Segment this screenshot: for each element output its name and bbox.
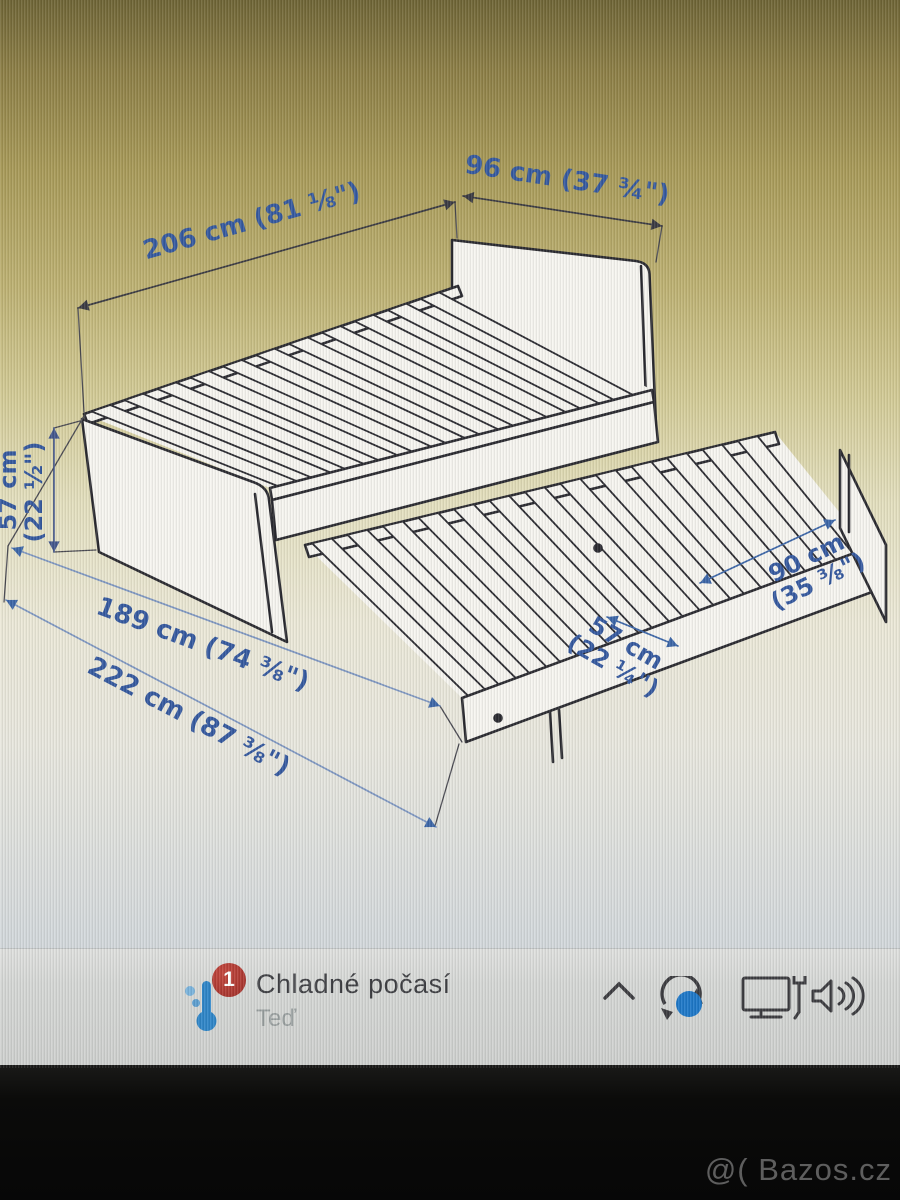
weather-news-widget[interactable]: 1 Chladné počasí Teď [180,967,510,1047]
sync-icon[interactable] [661,976,703,1020]
weather-subtitle: Teď [256,1005,451,1033]
screen-photo: 206 cm (81 ⅛") 96 cm (37 ¾") 57 cm (22 ½… [0,0,900,1200]
screen-bottom-bezel: @( Bazos.cz [0,1065,900,1200]
bed-dimension-diagram: 206 cm (81 ⅛") 96 cm (37 ¾") 57 cm (22 ½… [0,0,900,950]
system-tray [585,976,885,1046]
bazos-watermark: @( Bazos.cz [705,1152,892,1188]
label-height-1: 57 cm [0,450,22,531]
pullout-knob [495,715,502,722]
device-monitor-pen-icon[interactable] [743,976,805,1018]
weather-headline: Chladné počasí [256,969,451,1000]
label-height-2: (22 ½") [20,441,48,542]
bed-drawing [4,192,886,827]
notification-badge: 1 [212,963,246,997]
label-total-length: 206 cm (81 ⅛") [140,177,364,267]
pullout-knob [595,545,602,552]
pullout-leg [550,710,562,762]
volume-icon[interactable] [813,978,863,1014]
windows-taskbar: 1 Chladné počasí Teď [0,948,900,1066]
chevron-up-icon[interactable] [605,984,633,998]
weather-text: Chladné počasí Teď [256,969,451,1033]
